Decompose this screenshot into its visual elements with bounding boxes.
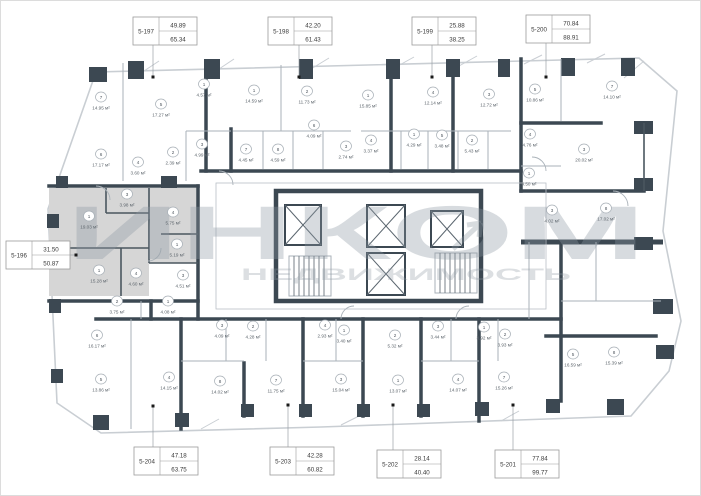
svg-text:3.44 м²: 3.44 м²	[431, 335, 446, 340]
unit-id: 5-197	[138, 29, 154, 36]
room-label: 312.72 м²	[480, 89, 498, 108]
room-label: 714.10 м²	[603, 81, 621, 100]
svg-text:3: 3	[437, 324, 440, 329]
room-label: 616.17 м²	[88, 330, 106, 349]
svg-text:1: 1	[528, 171, 531, 176]
svg-text:4: 4	[324, 323, 327, 328]
svg-text:3: 3	[551, 208, 554, 213]
svg-text:6: 6	[96, 333, 99, 338]
svg-text:14.15 м²: 14.15 м²	[160, 386, 178, 391]
svg-text:3.40 м²: 3.40 м²	[337, 339, 352, 344]
unit-id: 5-199	[417, 29, 433, 36]
svg-text:3: 3	[221, 323, 224, 328]
svg-text:17.27 м²: 17.27 м²	[152, 113, 170, 118]
svg-text:2: 2	[394, 333, 397, 338]
unit-id: 5-198	[273, 29, 289, 36]
svg-text:15.28 м²: 15.28 м²	[90, 279, 108, 284]
svg-text:4.51 м²: 4.51 м²	[176, 284, 191, 289]
svg-text:5.32 м²: 5.32 м²	[388, 344, 403, 349]
unit-area-bottom: 61.43	[305, 37, 321, 44]
svg-text:13.86 м²: 13.86 м²	[92, 388, 110, 393]
unit-area-top: 31.50	[43, 247, 59, 254]
svg-text:3.93 м²: 3.93 м²	[498, 343, 513, 348]
svg-text:4.59 м²: 4.59 м²	[271, 158, 286, 163]
unit-area-top: 49.89	[170, 23, 186, 30]
room-label: 517.27 м²	[152, 99, 170, 118]
svg-text:5: 5	[441, 133, 444, 138]
svg-text:10.86 м²: 10.86 м²	[526, 98, 544, 103]
svg-text:4: 4	[135, 271, 138, 276]
svg-text:1: 1	[343, 328, 346, 333]
svg-text:17.02 м²: 17.02 м²	[597, 217, 615, 222]
room-label: 23.93 м²	[498, 329, 513, 348]
room-label: 44.76 м²	[523, 129, 538, 148]
svg-text:5: 5	[534, 87, 537, 92]
unit-area-top: 77.84	[532, 456, 548, 463]
unit-area-top: 42.20	[305, 23, 321, 30]
svg-text:3.48 м²: 3.48 м²	[435, 144, 450, 149]
svg-text:4: 4	[172, 210, 175, 215]
svg-text:4.29 м²: 4.29 м²	[407, 143, 422, 148]
svg-text:5.19 м²: 5.19 м²	[170, 253, 185, 258]
unit-area-bottom: 40.40	[414, 470, 430, 477]
room-label: 24.28 м²	[246, 321, 261, 340]
room-label: 23.75 м²	[110, 296, 125, 315]
room-label: 815.39 м²	[605, 347, 623, 366]
leader-dot	[298, 76, 301, 79]
unit-area-bottom: 50.87	[43, 261, 59, 268]
watermark-brand: ИНКОМ	[66, 191, 646, 276]
unit-id: 5-203	[275, 459, 291, 466]
unit-area-top: 47.18	[171, 453, 187, 460]
room-label: 53.48 м²	[435, 130, 450, 149]
unit-area-bottom: 88.91	[563, 35, 579, 42]
svg-text:14.02 м²: 14.02 м²	[211, 390, 229, 395]
svg-text:2.39 м²: 2.39 м²	[166, 161, 181, 166]
svg-text:4.50 м²: 4.50 м²	[522, 182, 537, 187]
svg-text:3: 3	[488, 92, 491, 97]
svg-text:4.45 м²: 4.45 м²	[239, 158, 254, 163]
svg-text:4: 4	[370, 138, 373, 143]
svg-text:3: 3	[583, 147, 586, 152]
room-label: 84.59 м²	[271, 144, 286, 163]
room-label: 113.07 м²	[389, 375, 407, 394]
svg-text:1: 1	[253, 88, 256, 93]
unit-id: 5-200	[531, 27, 547, 34]
svg-text:5.75 м²: 5.75 м²	[166, 221, 181, 226]
unit-area-top: 42.28	[307, 453, 323, 460]
svg-text:12.14 м²: 12.14 м²	[424, 101, 442, 106]
svg-text:11.75 м²: 11.75 м²	[267, 389, 285, 394]
svg-text:7: 7	[245, 147, 248, 152]
leader-dot	[152, 76, 155, 79]
svg-text:4.08 м²: 4.08 м²	[161, 310, 176, 315]
svg-text:1: 1	[413, 132, 416, 137]
svg-text:2.93 м²: 2.93 м²	[318, 334, 333, 339]
unit-id: 5-202	[382, 462, 398, 469]
svg-text:7: 7	[100, 95, 103, 100]
svg-text:1: 1	[483, 325, 486, 330]
room-label: 715.26 м²	[495, 372, 513, 391]
room-label: 617.17 м²	[92, 149, 110, 168]
svg-text:15.39 м²: 15.39 м²	[605, 361, 623, 366]
room-label: 414.15 м²	[160, 372, 178, 391]
svg-text:3.92 м²: 3.92 м²	[477, 336, 492, 341]
svg-text:4.28 м²: 4.28 м²	[246, 335, 261, 340]
room-label: 513.86 м²	[92, 374, 110, 393]
room-label: 315.04 м²	[332, 374, 350, 393]
room-label: 25.43 м²	[465, 135, 480, 154]
svg-text:5: 5	[572, 352, 575, 357]
unit-callout-5-200: 5-20070.8488.91	[526, 15, 590, 79]
svg-text:4.76 м²: 4.76 м²	[523, 143, 538, 148]
svg-text:4: 4	[432, 90, 435, 95]
watermark: ИНКОМ НЕДВИЖИМОСТЬ	[66, 191, 646, 284]
svg-text:3.75 м²: 3.75 м²	[110, 310, 125, 315]
leader-dot	[545, 76, 548, 79]
unit-area-bottom: 99.77	[532, 470, 548, 477]
svg-text:3: 3	[201, 142, 204, 147]
room-label: 64.09 м²	[307, 120, 322, 139]
svg-text:2: 2	[172, 150, 175, 155]
svg-text:4.99 м²: 4.99 м²	[195, 153, 210, 158]
svg-text:2: 2	[504, 332, 507, 337]
room-label: 516.59 м²	[564, 349, 582, 368]
room-label: 711.75 м²	[267, 375, 285, 394]
room-label: 34.09 м²	[215, 320, 230, 339]
unit-id: 5-196	[11, 253, 27, 260]
svg-text:7: 7	[503, 375, 506, 380]
svg-text:3: 3	[182, 273, 185, 278]
svg-text:7: 7	[275, 378, 278, 383]
room-label: 14.29 м²	[407, 129, 422, 148]
svg-text:8: 8	[613, 350, 616, 355]
svg-text:2: 2	[471, 138, 474, 143]
svg-text:3.60 м²: 3.60 м²	[131, 171, 146, 176]
svg-text:1: 1	[167, 299, 170, 304]
svg-text:4.09 м²: 4.09 м²	[215, 334, 230, 339]
svg-text:14.10 м²: 14.10 м²	[603, 95, 621, 100]
watermark-subtitle: НЕДВИЖИМОСТЬ	[241, 265, 571, 284]
svg-text:3.98 м²: 3.98 м²	[120, 203, 135, 208]
unit-area-bottom: 38.25	[449, 37, 465, 44]
svg-text:1: 1	[98, 268, 101, 273]
floor-plan-image: ИНКОМ НЕДВИЖИМОСТЬ 714.95 м²517.27 м²14.…	[0, 0, 701, 496]
svg-text:5.43 м²: 5.43 м²	[465, 149, 480, 154]
svg-text:2: 2	[116, 299, 119, 304]
svg-text:2: 2	[252, 324, 255, 329]
room-label: 814.02 м²	[211, 376, 229, 395]
svg-text:2.74 м²: 2.74 м²	[339, 155, 354, 160]
svg-text:3: 3	[345, 144, 348, 149]
svg-text:14.95 м²: 14.95 м²	[92, 106, 110, 111]
room-label: 114.59 м²	[245, 85, 263, 104]
room-label: 14.08 м²	[161, 296, 176, 315]
room-label: 25.32 м²	[388, 330, 403, 349]
room-label: 22.39 м²	[166, 147, 181, 166]
svg-text:16.17 м²: 16.17 м²	[88, 344, 106, 349]
svg-text:8: 8	[277, 147, 280, 152]
leader-dot	[287, 404, 290, 407]
leader-dot	[512, 404, 515, 407]
room-label: 115.85 м²	[359, 90, 377, 109]
svg-text:19.03 м²: 19.03 м²	[80, 225, 98, 230]
leader-dot	[431, 76, 434, 79]
svg-text:3: 3	[126, 192, 129, 197]
leader-dot	[392, 404, 395, 407]
floor-plan-svg: ИНКОМ НЕДВИЖИМОСТЬ 714.95 м²517.27 м²14.…	[1, 1, 701, 496]
svg-text:16.59 м²: 16.59 м²	[564, 363, 582, 368]
svg-text:4: 4	[529, 132, 532, 137]
svg-text:1: 1	[88, 214, 91, 219]
leader-dot	[152, 405, 155, 408]
room-label: 42.93 м²	[318, 320, 333, 339]
unit-id: 5-201	[500, 462, 516, 469]
room-label: 14.50 м²	[522, 168, 537, 187]
room-label: 714.95 м²	[92, 92, 110, 111]
svg-text:6: 6	[313, 123, 316, 128]
room-label: 32.74 м²	[339, 141, 354, 160]
svg-text:4: 4	[457, 377, 460, 382]
unit-area-bottom: 60.82	[307, 467, 323, 474]
unit-callout-5-199: 5-19925.8838.25	[412, 17, 476, 79]
svg-text:12.72 м²: 12.72 м²	[480, 103, 498, 108]
svg-text:3.37 м²: 3.37 м²	[364, 149, 379, 154]
leader-dot	[75, 254, 78, 257]
room-label: 510.86 м²	[526, 84, 544, 103]
svg-text:5: 5	[100, 377, 103, 382]
unit-area-top: 70.84	[563, 21, 579, 28]
svg-text:11.73 м²: 11.73 м²	[298, 100, 316, 105]
unit-area-top: 25.88	[449, 23, 465, 30]
room-label: 14.57 м²	[197, 79, 212, 98]
svg-text:6: 6	[100, 152, 103, 157]
unit-callout-5-196: 5-19631.5050.87	[6, 241, 78, 269]
svg-text:3: 3	[340, 377, 343, 382]
svg-text:17.17 м²: 17.17 м²	[92, 163, 110, 168]
svg-text:7: 7	[611, 84, 614, 89]
unit-area-top: 28.14	[414, 456, 430, 463]
unit-callout-5-201: 5-20177.8499.77	[495, 404, 559, 479]
svg-text:8: 8	[219, 379, 222, 384]
svg-text:15.85 м²: 15.85 м²	[359, 104, 377, 109]
room-label: 414.07 м²	[449, 374, 467, 393]
svg-text:1: 1	[176, 242, 179, 247]
unit-area-bottom: 65.34	[170, 37, 186, 44]
unit-area-bottom: 63.75	[171, 467, 187, 474]
svg-text:14.07 м²: 14.07 м²	[449, 388, 467, 393]
room-label: 211.73 м²	[298, 86, 316, 105]
svg-text:4: 4	[137, 160, 140, 165]
svg-text:14.59 м²: 14.59 м²	[245, 99, 263, 104]
svg-text:15.26 м²: 15.26 м²	[495, 386, 513, 391]
room-label: 33.44 м²	[431, 321, 446, 340]
svg-text:4.09 м²: 4.09 м²	[307, 134, 322, 139]
svg-text:13.07 м²: 13.07 м²	[389, 389, 407, 394]
svg-text:5: 5	[160, 102, 163, 107]
svg-text:4.02 м²: 4.02 м²	[545, 219, 560, 224]
room-label: 412.14 м²	[424, 87, 442, 106]
room-label: 13.40 м²	[337, 325, 352, 344]
svg-text:4.60 м²: 4.60 м²	[129, 282, 144, 287]
svg-text:1: 1	[397, 378, 400, 383]
svg-text:4: 4	[168, 375, 171, 380]
svg-text:2: 2	[306, 89, 309, 94]
room-label: 43.37 м²	[364, 135, 379, 154]
svg-text:1: 1	[203, 82, 206, 87]
room-label: 43.60 м²	[131, 157, 146, 176]
room-label: 74.45 м²	[239, 144, 254, 163]
svg-text:8: 8	[605, 206, 608, 211]
svg-text:1: 1	[367, 93, 370, 98]
svg-text:15.04 м²: 15.04 м²	[332, 388, 350, 393]
room-label: 320.02 м²	[575, 144, 593, 163]
unit-id: 5-204	[139, 459, 155, 466]
svg-text:4.57 м²: 4.57 м²	[197, 93, 212, 98]
svg-text:20.02 м²: 20.02 м²	[575, 158, 593, 163]
unit-callout-5-202: 5-20228.1440.40	[377, 404, 441, 479]
